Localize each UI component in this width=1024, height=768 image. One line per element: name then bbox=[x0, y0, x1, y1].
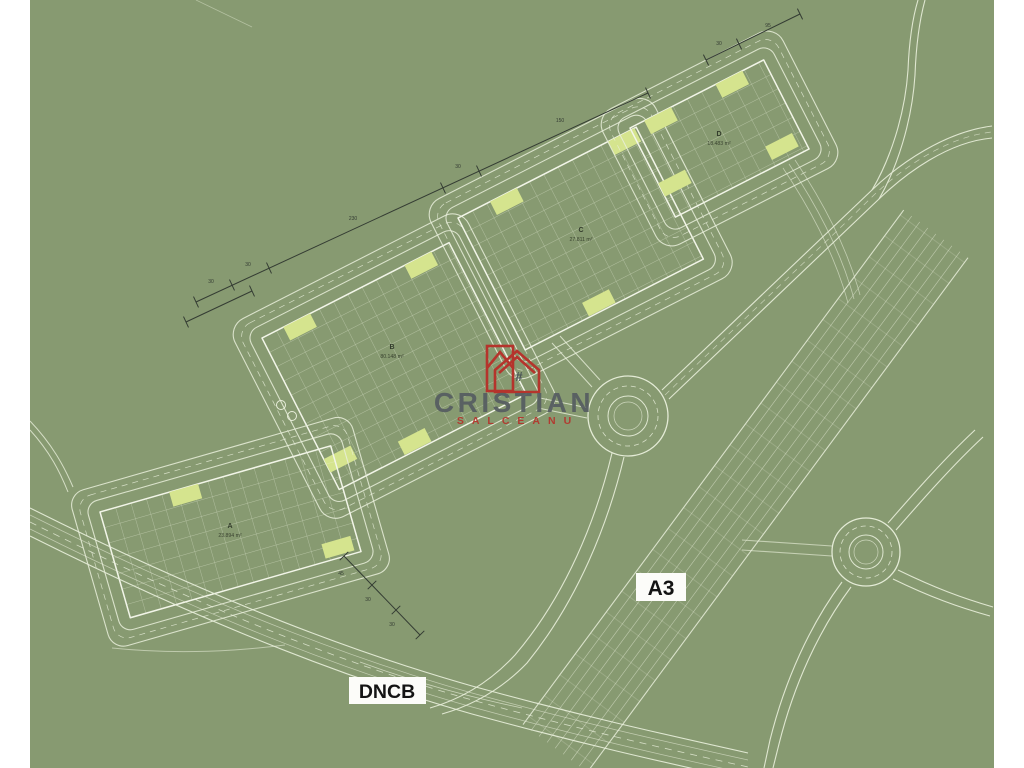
dncb-text: DNCB bbox=[359, 681, 415, 703]
plot-c-area: 27.811 m² bbox=[570, 237, 593, 243]
dim-label: 30 bbox=[389, 622, 395, 628]
plot-d-area: 18.483 m² bbox=[707, 141, 731, 147]
dim-label: 30 bbox=[208, 279, 214, 285]
watermark-brand: CRISTIAN bbox=[434, 387, 594, 418]
dim-label: 30 bbox=[245, 262, 251, 268]
frame-left bbox=[0, 0, 30, 768]
dim-label: 230 bbox=[349, 216, 358, 222]
plot-b-area: 80.148 m² bbox=[380, 354, 404, 360]
dim-label: 30 bbox=[455, 164, 461, 170]
plot-c-letter: C bbox=[578, 227, 583, 234]
dim-label: 30 bbox=[365, 597, 371, 603]
label-a3: A3 bbox=[636, 573, 686, 601]
a3-text: A3 bbox=[648, 577, 675, 600]
dim-label: 150 bbox=[556, 118, 565, 124]
site-plan-svg: 30 30 230 30 150 30 95 45 30 30 A 23.894… bbox=[0, 0, 1024, 768]
label-dncb: DNCB bbox=[349, 677, 426, 704]
dim-label: 30 bbox=[716, 41, 722, 47]
dim-label: 95 bbox=[765, 23, 771, 29]
plot-a-letter: A bbox=[227, 523, 232, 530]
plot-d-letter: D bbox=[716, 131, 721, 138]
plot-a-area: 23.894 m² bbox=[218, 533, 242, 539]
dim-label: 45 bbox=[338, 571, 344, 577]
watermark-subtitle: SALCEANU bbox=[457, 415, 579, 427]
plot-b-letter: B bbox=[389, 344, 394, 351]
frame-right bbox=[994, 0, 1024, 768]
site-plan-image: 30 30 230 30 150 30 95 45 30 30 A 23.894… bbox=[0, 0, 1024, 768]
hash-glyph: # bbox=[515, 369, 523, 384]
